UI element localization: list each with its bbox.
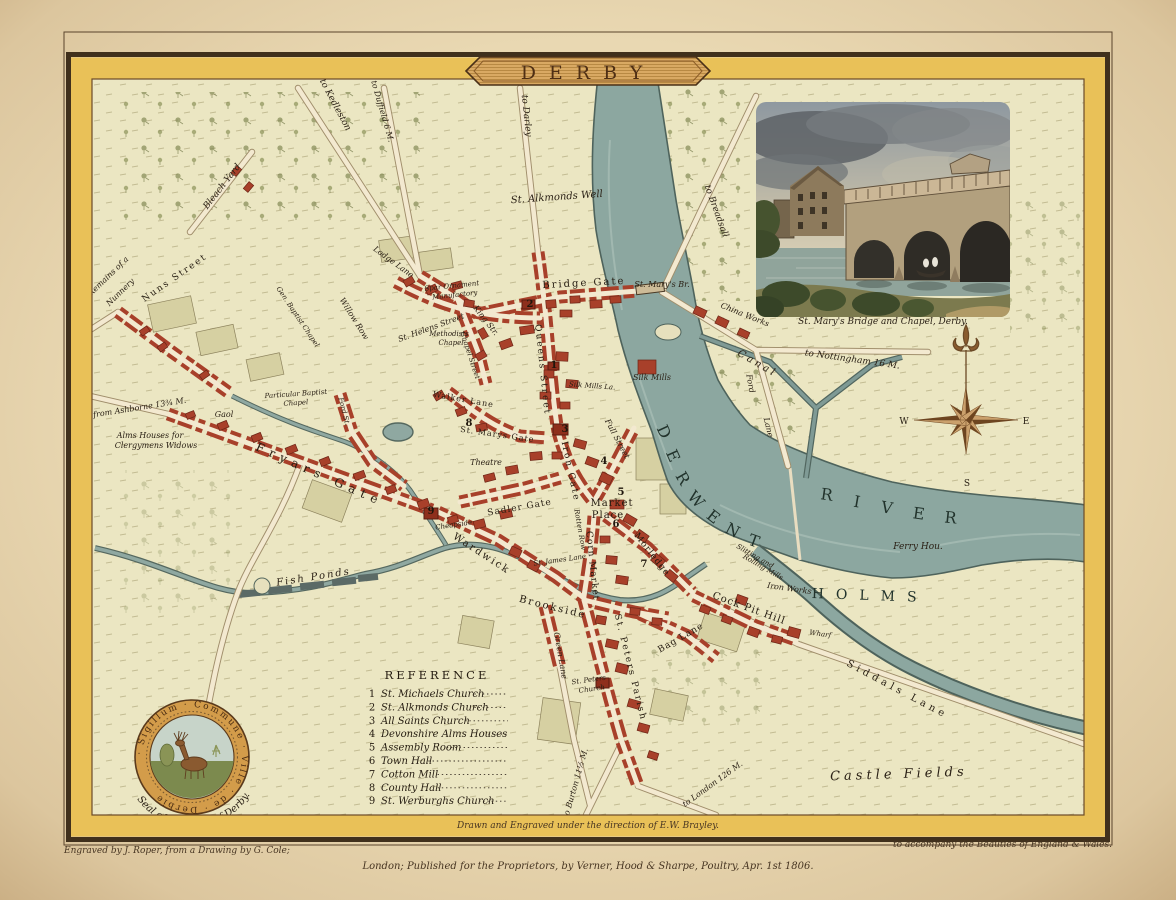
map-label: 5 xyxy=(618,487,625,498)
town-seal: · Sigillum · Commune · Ville · de · Derb… xyxy=(135,700,253,830)
title-banner: DERBY xyxy=(466,57,710,85)
reference-item-label: St. Alkmonds Church xyxy=(381,702,489,713)
reference-title: REFERENCE xyxy=(385,668,490,682)
reference-item-label: Town Hall xyxy=(381,756,432,767)
compass-east-label: E xyxy=(1023,417,1030,427)
reference-item-label: All Saints Church xyxy=(380,716,470,727)
reference-item-label: Assembly Room xyxy=(380,743,461,754)
reference-item-label: Cotton Mill xyxy=(381,769,438,780)
reference-item-number: 7 xyxy=(369,769,375,780)
reference-item-number: 9 xyxy=(369,796,375,807)
map-label: Market xyxy=(591,498,634,509)
vignette-caption: St. Mary's Bridge and Chapel, Derby. xyxy=(798,317,968,327)
imprint-published: London; Published for the Proprietors, b… xyxy=(361,861,813,872)
reference-item-number: 3 xyxy=(369,716,375,727)
map-label: 8 xyxy=(466,418,473,429)
map-label: 2 xyxy=(527,299,534,310)
map-label: 3 xyxy=(562,424,569,435)
map-label: 1 xyxy=(551,360,558,371)
imprint-engraved: Engraved by J. Roper, from a Drawing by … xyxy=(63,846,290,856)
map-label: 9 xyxy=(428,506,435,517)
compass-west-label: W xyxy=(899,417,909,427)
map-label: 4 xyxy=(601,456,608,467)
reference-item-label: Devonshire Alms Houses xyxy=(380,729,507,740)
vignette-st-marys-bridge: St. Mary's Bridge and Chapel, Derby. xyxy=(740,102,1028,327)
map-label: Alms Houses for xyxy=(116,431,185,440)
derby-map-engraving: REFERENCE 1St. Michaels Church2St. Alkmo… xyxy=(0,0,1176,900)
map-area: REFERENCE 1St. Michaels Church2St. Alkmo… xyxy=(86,76,1086,830)
map-label: Ferry Hou. xyxy=(892,542,943,552)
imprint-accompany: to accompany the Beauties of England & W… xyxy=(893,840,1112,850)
map-label: St. Mary's Br. xyxy=(634,280,689,289)
map-label: Clergymens Widows xyxy=(115,441,198,450)
reference-item-label: County Hall xyxy=(381,783,441,794)
map-label: Theatre xyxy=(470,458,502,467)
reference-item-number: 1 xyxy=(369,689,375,700)
reference-item-number: 5 xyxy=(369,743,375,754)
reference-item-label: St. Michaels Church xyxy=(381,689,484,700)
map-label: 6 xyxy=(613,519,620,530)
reference-item-number: 2 xyxy=(369,702,375,713)
map-label: Silk Mills xyxy=(633,373,671,382)
reference-item-number: 4 xyxy=(369,729,375,740)
reference-item-number: 6 xyxy=(369,756,375,767)
map-label: Chapel xyxy=(439,339,464,347)
antique-map-plate: REFERENCE 1St. Michaels Church2St. Alkmo… xyxy=(0,0,1176,900)
map-label: 7 xyxy=(641,559,648,570)
reference-item-label: St. Werburghs Church xyxy=(381,796,495,807)
compass-south-label: S xyxy=(964,479,970,489)
imprint-drawn: Drawn and Engraved under the direction o… xyxy=(456,821,719,831)
map-label: Gaol xyxy=(215,410,234,419)
reference-item-number: 8 xyxy=(369,783,375,794)
map-title: DERBY xyxy=(521,62,656,84)
seal-tree-left xyxy=(160,744,174,766)
